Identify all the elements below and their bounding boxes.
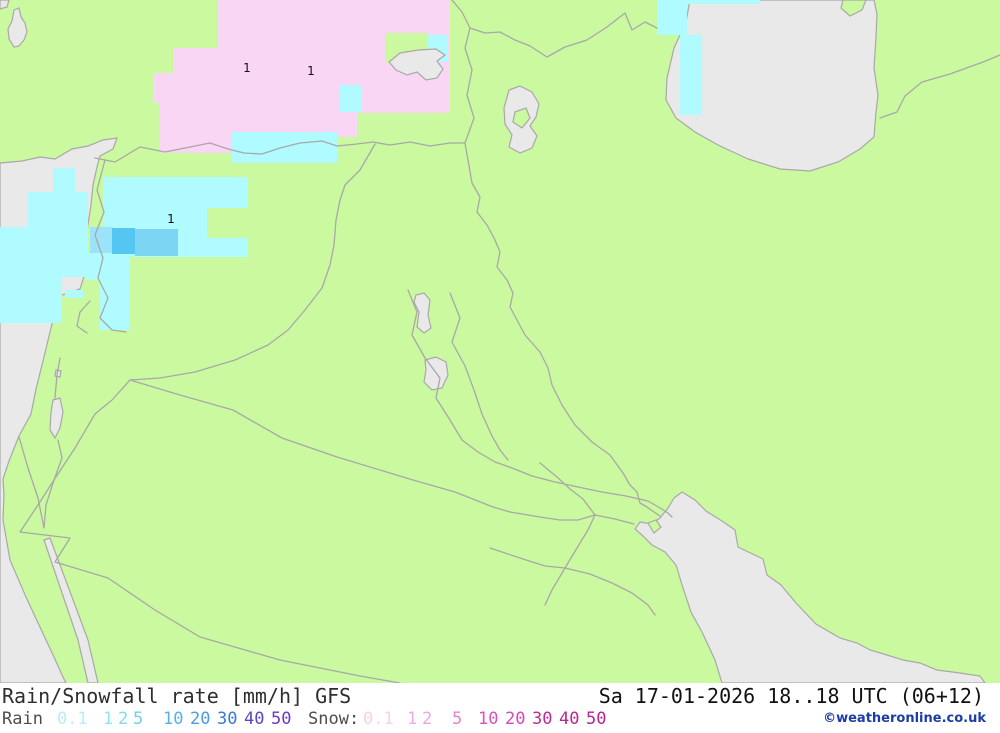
caption-line: Rain/Snowfall rate [mm/h] GFS Sa 17-01-2… [0, 684, 1000, 708]
legend-level: 10 [478, 709, 498, 729]
legend-level: 20 [190, 709, 210, 729]
legend-level: 2 [118, 709, 128, 729]
legend-level: 20 [505, 709, 525, 729]
precip-cell-rain-5 [657, 0, 687, 35]
precip-cell-snow-3 [153, 73, 173, 103]
legend-level: 10 [163, 709, 183, 729]
weather-map: 111 [0, 0, 1000, 683]
legend-level: 1 [103, 709, 113, 729]
legend-level: 30 [217, 709, 237, 729]
precip-cell-rain-7 [53, 168, 75, 194]
precip-cell-rain-2 [340, 85, 362, 112]
legend-level: 2 [422, 709, 432, 729]
valid-datetime: Sa 17-01-2026 18..18 UTC (06+12) [599, 684, 984, 708]
scale-line: Rain 0.11251020304050 Snow: 0.1125102030… [0, 709, 1000, 733]
legend-level: 5 [133, 709, 143, 729]
precip-cell-clear-2 [207, 208, 248, 238]
precip-cell-rain-6 [680, 35, 702, 115]
legend-level: 1 [407, 709, 417, 729]
legend-level: 50 [271, 709, 291, 729]
rain-scale-label: Rain [2, 709, 43, 729]
legend-level: 50 [586, 709, 606, 729]
legend-level: 0.1 [363, 709, 394, 729]
legend-level: 40 [559, 709, 579, 729]
legend-bar: Rain/Snowfall rate [mm/h] GFS Sa 17-01-2… [0, 683, 1000, 733]
precip-cell-rain-13 [13, 277, 62, 323]
precip-cell-snow-5 [160, 132, 232, 153]
legend-level: 5 [452, 709, 462, 729]
copyright-link[interactable]: ©weatheronline.co.uk [823, 711, 986, 726]
precip-cell-rain-b3 [135, 229, 178, 256]
precip-value-label: 1 [167, 212, 175, 226]
precip-cell-rain-8 [28, 192, 88, 277]
legend-level: 40 [244, 709, 264, 729]
precip-cell-rain-14 [65, 290, 83, 298]
precip-cell-rain-b2 [112, 228, 135, 254]
map-canvas: 111 [0, 0, 1000, 683]
legend-level: 0.1 [57, 709, 88, 729]
snow-scale-label: Snow: [308, 709, 359, 729]
precip-cell-rain-11 [85, 252, 130, 280]
precip-cell-snow-4 [160, 100, 357, 137]
precip-value-label: 1 [307, 64, 315, 78]
precip-value-label: 1 [243, 61, 251, 75]
precip-cell-rain-b1 [90, 227, 113, 253]
product-title: Rain/Snowfall rate [mm/h] GFS [2, 684, 351, 708]
legend-level: 30 [532, 709, 552, 729]
weather-map-screenshot: 111 Rain/Snowfall rate [mm/h] GFS Sa 17-… [0, 0, 1000, 733]
